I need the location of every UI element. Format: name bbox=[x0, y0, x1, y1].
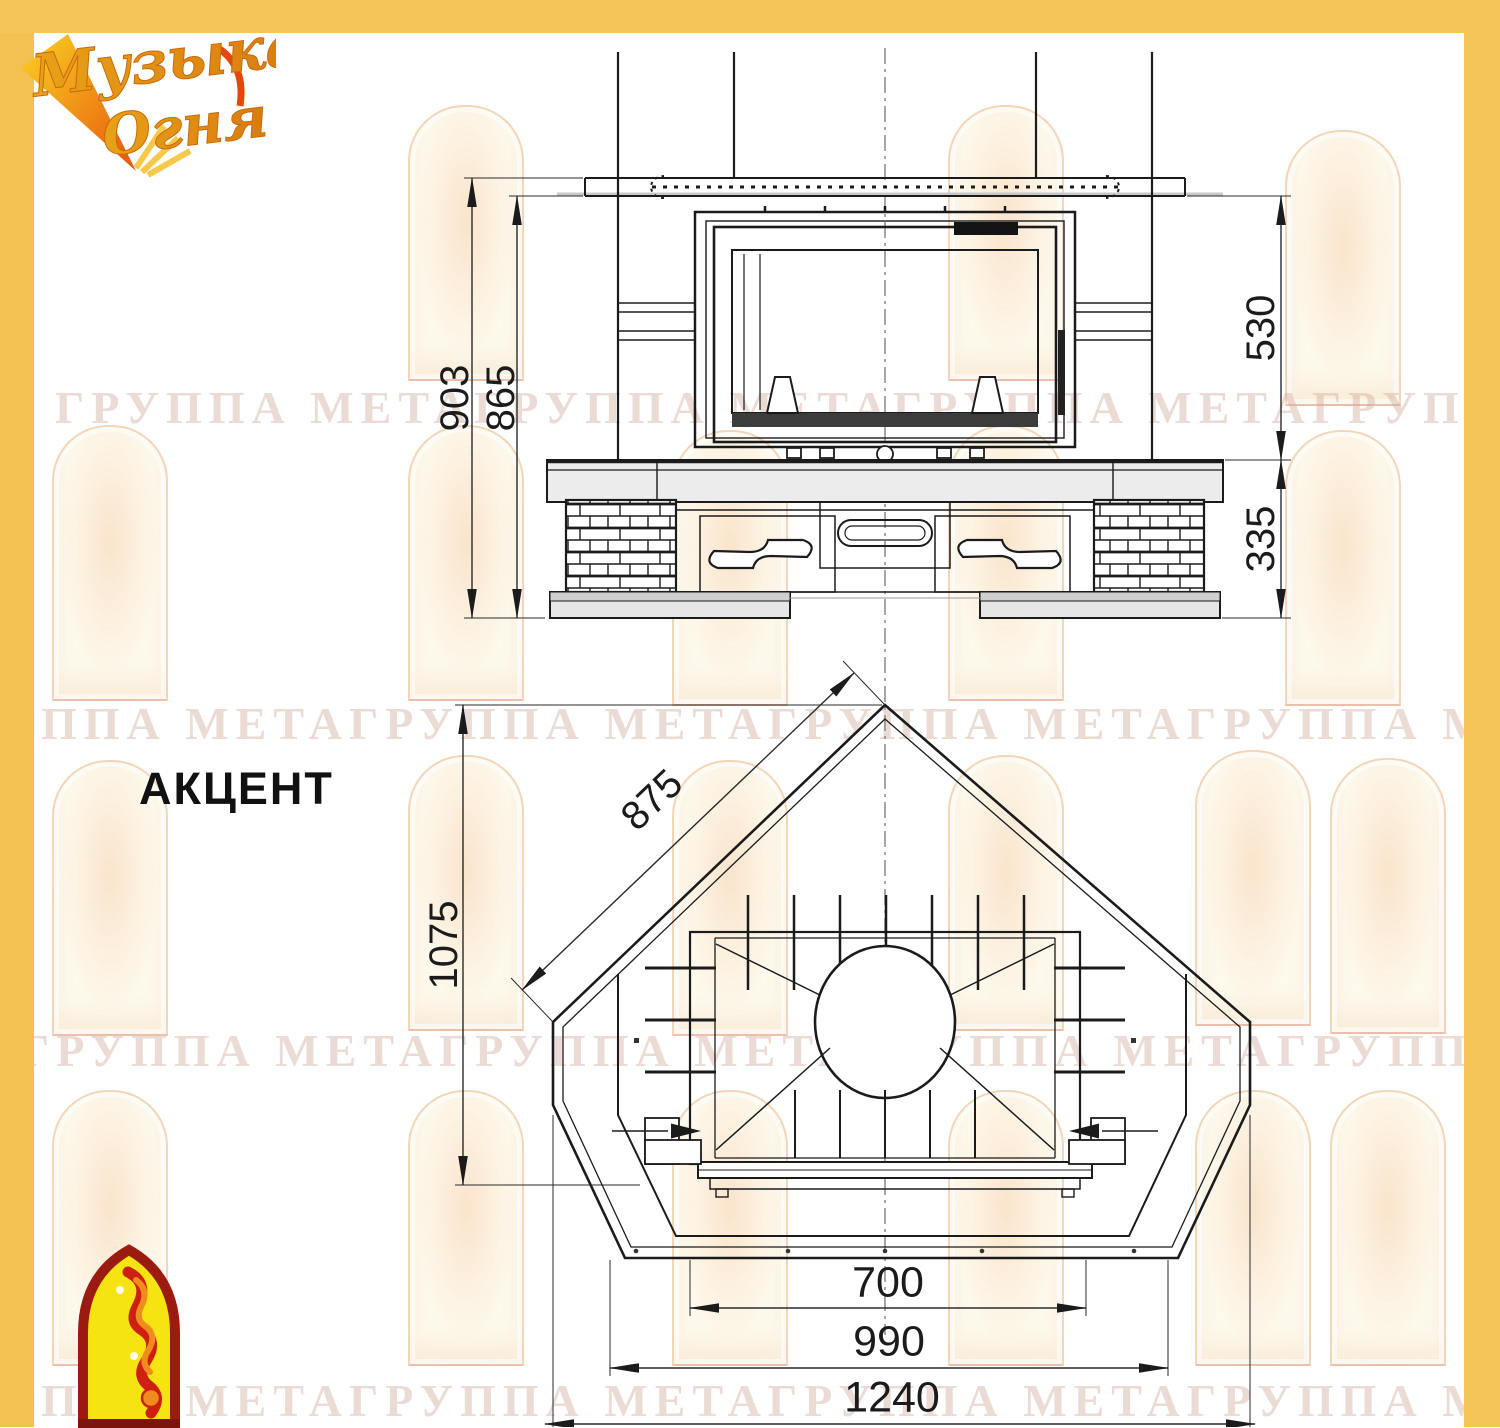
brand-logo: Музыка Огня bbox=[6, 8, 276, 193]
model-title: АКЦЕНТ bbox=[139, 763, 334, 815]
plan-opening-width-dim: 700 bbox=[852, 1262, 924, 1305]
firebird-emblem bbox=[76, 1238, 182, 1428]
front-overall-height-dim: 903 bbox=[435, 365, 475, 432]
front-inner-height-dim: 865 bbox=[481, 365, 521, 432]
front-firebox-height-dim: 530 bbox=[1241, 295, 1281, 362]
page-frame-left bbox=[0, 0, 34, 1427]
plan-overall-width-dim: 1240 bbox=[844, 1377, 940, 1420]
plan-mid-width-dim: 990 bbox=[853, 1321, 925, 1364]
page-frame-right bbox=[1464, 0, 1500, 1427]
front-base-height-dim: 335 bbox=[1241, 506, 1281, 573]
door-logo-plate bbox=[954, 222, 1018, 235]
plan-depth-dim: 1075 bbox=[424, 901, 464, 990]
fireplace-technical-drawing bbox=[0, 0, 1500, 1427]
